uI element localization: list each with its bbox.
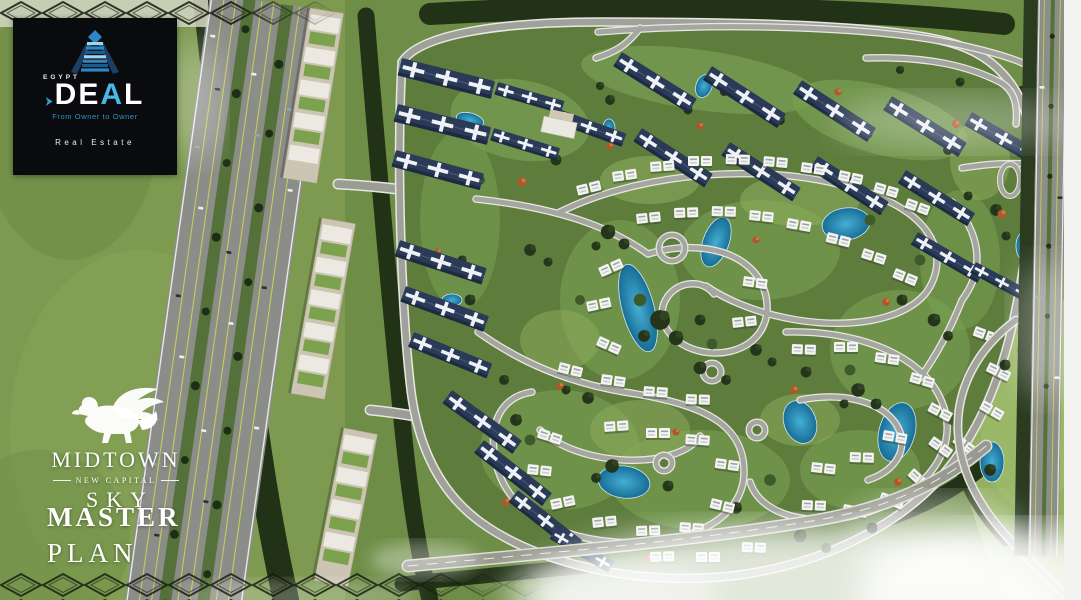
deal-building-icon — [59, 28, 131, 80]
caption-line2: PLAN — [47, 538, 181, 569]
deal-accent-mark — [46, 97, 53, 106]
masterplan-poster: EGYPT DEAL From Owner to Owner Real Esta… — [0, 0, 1081, 600]
edge-strip — [1064, 0, 1081, 600]
midtown-sky-logo: MIDTOWN NEW CAPITAL SKY — [26, 383, 206, 513]
brand-name-a: A — [100, 81, 124, 109]
brand-name-l: L — [124, 81, 144, 109]
caption-line1: MASTER — [47, 502, 181, 533]
subtitle-rule-left — [53, 480, 71, 481]
griffin-icon — [64, 383, 168, 445]
decorative-lattice-bottom — [0, 572, 540, 600]
brand-sector: Real Estate — [55, 138, 135, 147]
master-plan-title: MASTER PLAN — [47, 502, 181, 569]
brand-name: DEAL — [46, 81, 145, 109]
brand-tagline: From Owner to Owner — [52, 112, 138, 121]
project-subtitle-row: NEW CAPITAL — [26, 476, 206, 485]
project-name: MIDTOWN — [26, 447, 206, 473]
brand-name-de: DE — [55, 81, 101, 109]
project-subtitle: NEW CAPITAL — [76, 476, 157, 485]
subtitle-rule-right — [161, 480, 179, 481]
egypt-deal-logo: EGYPT DEAL From Owner to Owner Real Esta… — [13, 18, 177, 175]
